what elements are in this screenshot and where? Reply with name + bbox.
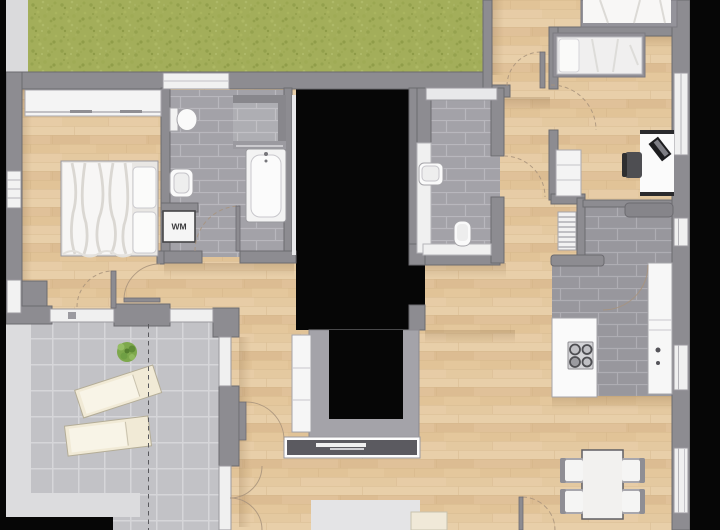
- svg-text:WM: WM: [171, 222, 186, 232]
